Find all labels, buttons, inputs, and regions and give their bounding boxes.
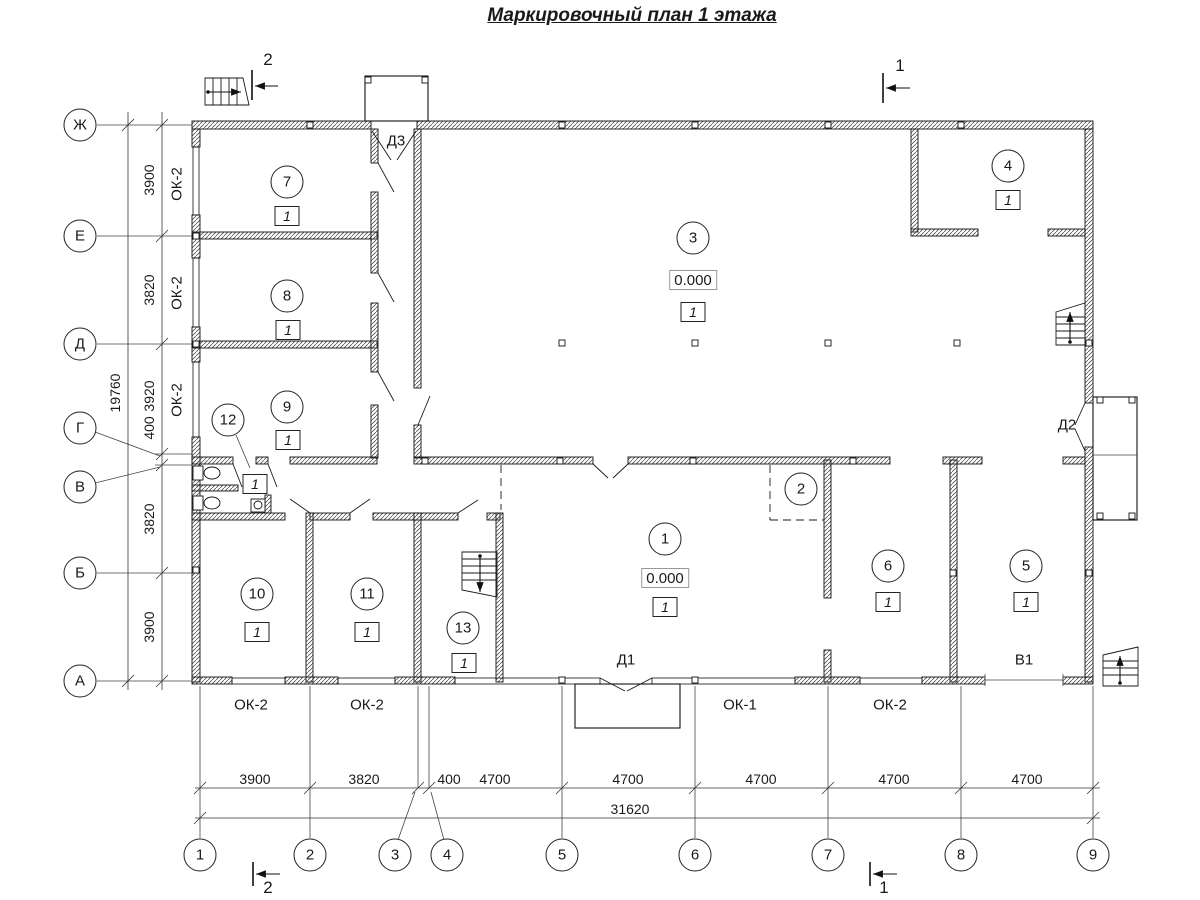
axis-bubble-Б: Б xyxy=(64,557,97,590)
room-bubble-1: 1 xyxy=(649,523,682,556)
room-bubble-3: 3 xyxy=(677,222,710,255)
room-class-square: 1 xyxy=(243,474,268,494)
room-class-square: 1 xyxy=(276,320,301,340)
room-bubble-9: 9 xyxy=(271,391,304,424)
room-bubble-10: 10 xyxy=(241,578,274,611)
room-bubble-4: 4 xyxy=(992,150,1025,183)
room-class-square: 1 xyxy=(275,206,300,226)
room-class-square: 1 xyxy=(876,592,901,612)
room-bubble-7: 7 xyxy=(271,166,304,199)
window-tag: ОК-2 xyxy=(169,167,186,201)
axis-bubble-8: 8 xyxy=(945,839,978,872)
axis-bubble-4: 4 xyxy=(431,839,464,872)
dim-label: 400 xyxy=(141,416,157,439)
room-class-square: 1 xyxy=(245,622,270,642)
axis-bubble-Г: Г xyxy=(64,412,97,445)
window-tag: ОК-1 xyxy=(723,697,757,714)
axis-bubble-1: 1 xyxy=(184,839,217,872)
dim-label: 400 xyxy=(437,771,460,787)
dim-label: 3920 xyxy=(141,380,157,411)
door-tag: Д1 xyxy=(617,652,636,669)
room-bubble-6: 6 xyxy=(872,550,905,583)
window-tag: ОК-2 xyxy=(169,383,186,417)
dim-label: 4700 xyxy=(878,771,909,787)
dim-label: 3900 xyxy=(239,771,270,787)
dim-label: 3820 xyxy=(141,503,157,534)
axis-bubble-А: А xyxy=(64,665,97,698)
dim-label: 4700 xyxy=(612,771,643,787)
window-tag: ОК-2 xyxy=(169,276,186,310)
axis-bubble-Ж: Ж xyxy=(64,109,97,142)
dim-label: 4700 xyxy=(479,771,510,787)
door-tag: В1 xyxy=(1015,652,1033,669)
room-class-square: 1 xyxy=(653,597,678,617)
dim-label: 3900 xyxy=(141,611,157,642)
axis-bubble-7: 7 xyxy=(812,839,845,872)
axis-bubble-5: 5 xyxy=(546,839,579,872)
window-tag: ОК-2 xyxy=(234,697,268,714)
room-class-square: 1 xyxy=(276,430,301,450)
room-class-square: 1 xyxy=(452,653,477,673)
dim-label: 3820 xyxy=(141,274,157,305)
dim-label: 4700 xyxy=(745,771,776,787)
room-bubble-12: 12 xyxy=(212,404,245,437)
section-mark-label: 2 xyxy=(263,878,272,898)
window-tag: ОК-2 xyxy=(350,697,384,714)
dim-label: 3820 xyxy=(348,771,379,787)
section-mark-label: 2 xyxy=(263,50,272,70)
dim-label: 3900 xyxy=(141,164,157,195)
section-mark-label: 1 xyxy=(879,878,888,898)
section-mark-label: 1 xyxy=(895,56,904,76)
plan-labels: Маркировочный план 1 этажа 3900382039204… xyxy=(0,0,1200,900)
room-bubble-13: 13 xyxy=(447,612,480,645)
axis-bubble-6: 6 xyxy=(679,839,712,872)
room-bubble-2: 2 xyxy=(785,473,818,506)
door-tag: Д2 xyxy=(1058,417,1077,434)
dim-label: 19760 xyxy=(107,374,123,413)
room-class-square: 1 xyxy=(355,622,380,642)
elevation-label: 0.000 xyxy=(669,270,717,290)
window-tag: ОК-2 xyxy=(873,697,907,714)
room-class-square: 1 xyxy=(996,190,1021,210)
axis-bubble-9: 9 xyxy=(1077,839,1110,872)
axis-bubble-Е: Е xyxy=(64,220,97,253)
room-bubble-8: 8 xyxy=(271,280,304,313)
axis-bubble-В: В xyxy=(64,471,97,504)
elevation-label: 0.000 xyxy=(641,568,689,588)
dim-label: 4700 xyxy=(1011,771,1042,787)
room-class-square: 1 xyxy=(1014,592,1039,612)
door-tag: Д3 xyxy=(387,133,406,150)
floor-plan: Маркировочный план 1 этажа 3900382039204… xyxy=(0,0,1200,900)
axis-bubble-2: 2 xyxy=(294,839,327,872)
dim-label: 31620 xyxy=(611,801,650,817)
room-bubble-5: 5 xyxy=(1010,550,1043,583)
axis-bubble-3: 3 xyxy=(379,839,412,872)
room-class-square: 1 xyxy=(681,302,706,322)
page-title: Маркировочный план 1 этажа xyxy=(487,5,776,27)
axis-bubble-Д: Д xyxy=(64,328,97,361)
room-bubble-11: 11 xyxy=(351,578,384,611)
